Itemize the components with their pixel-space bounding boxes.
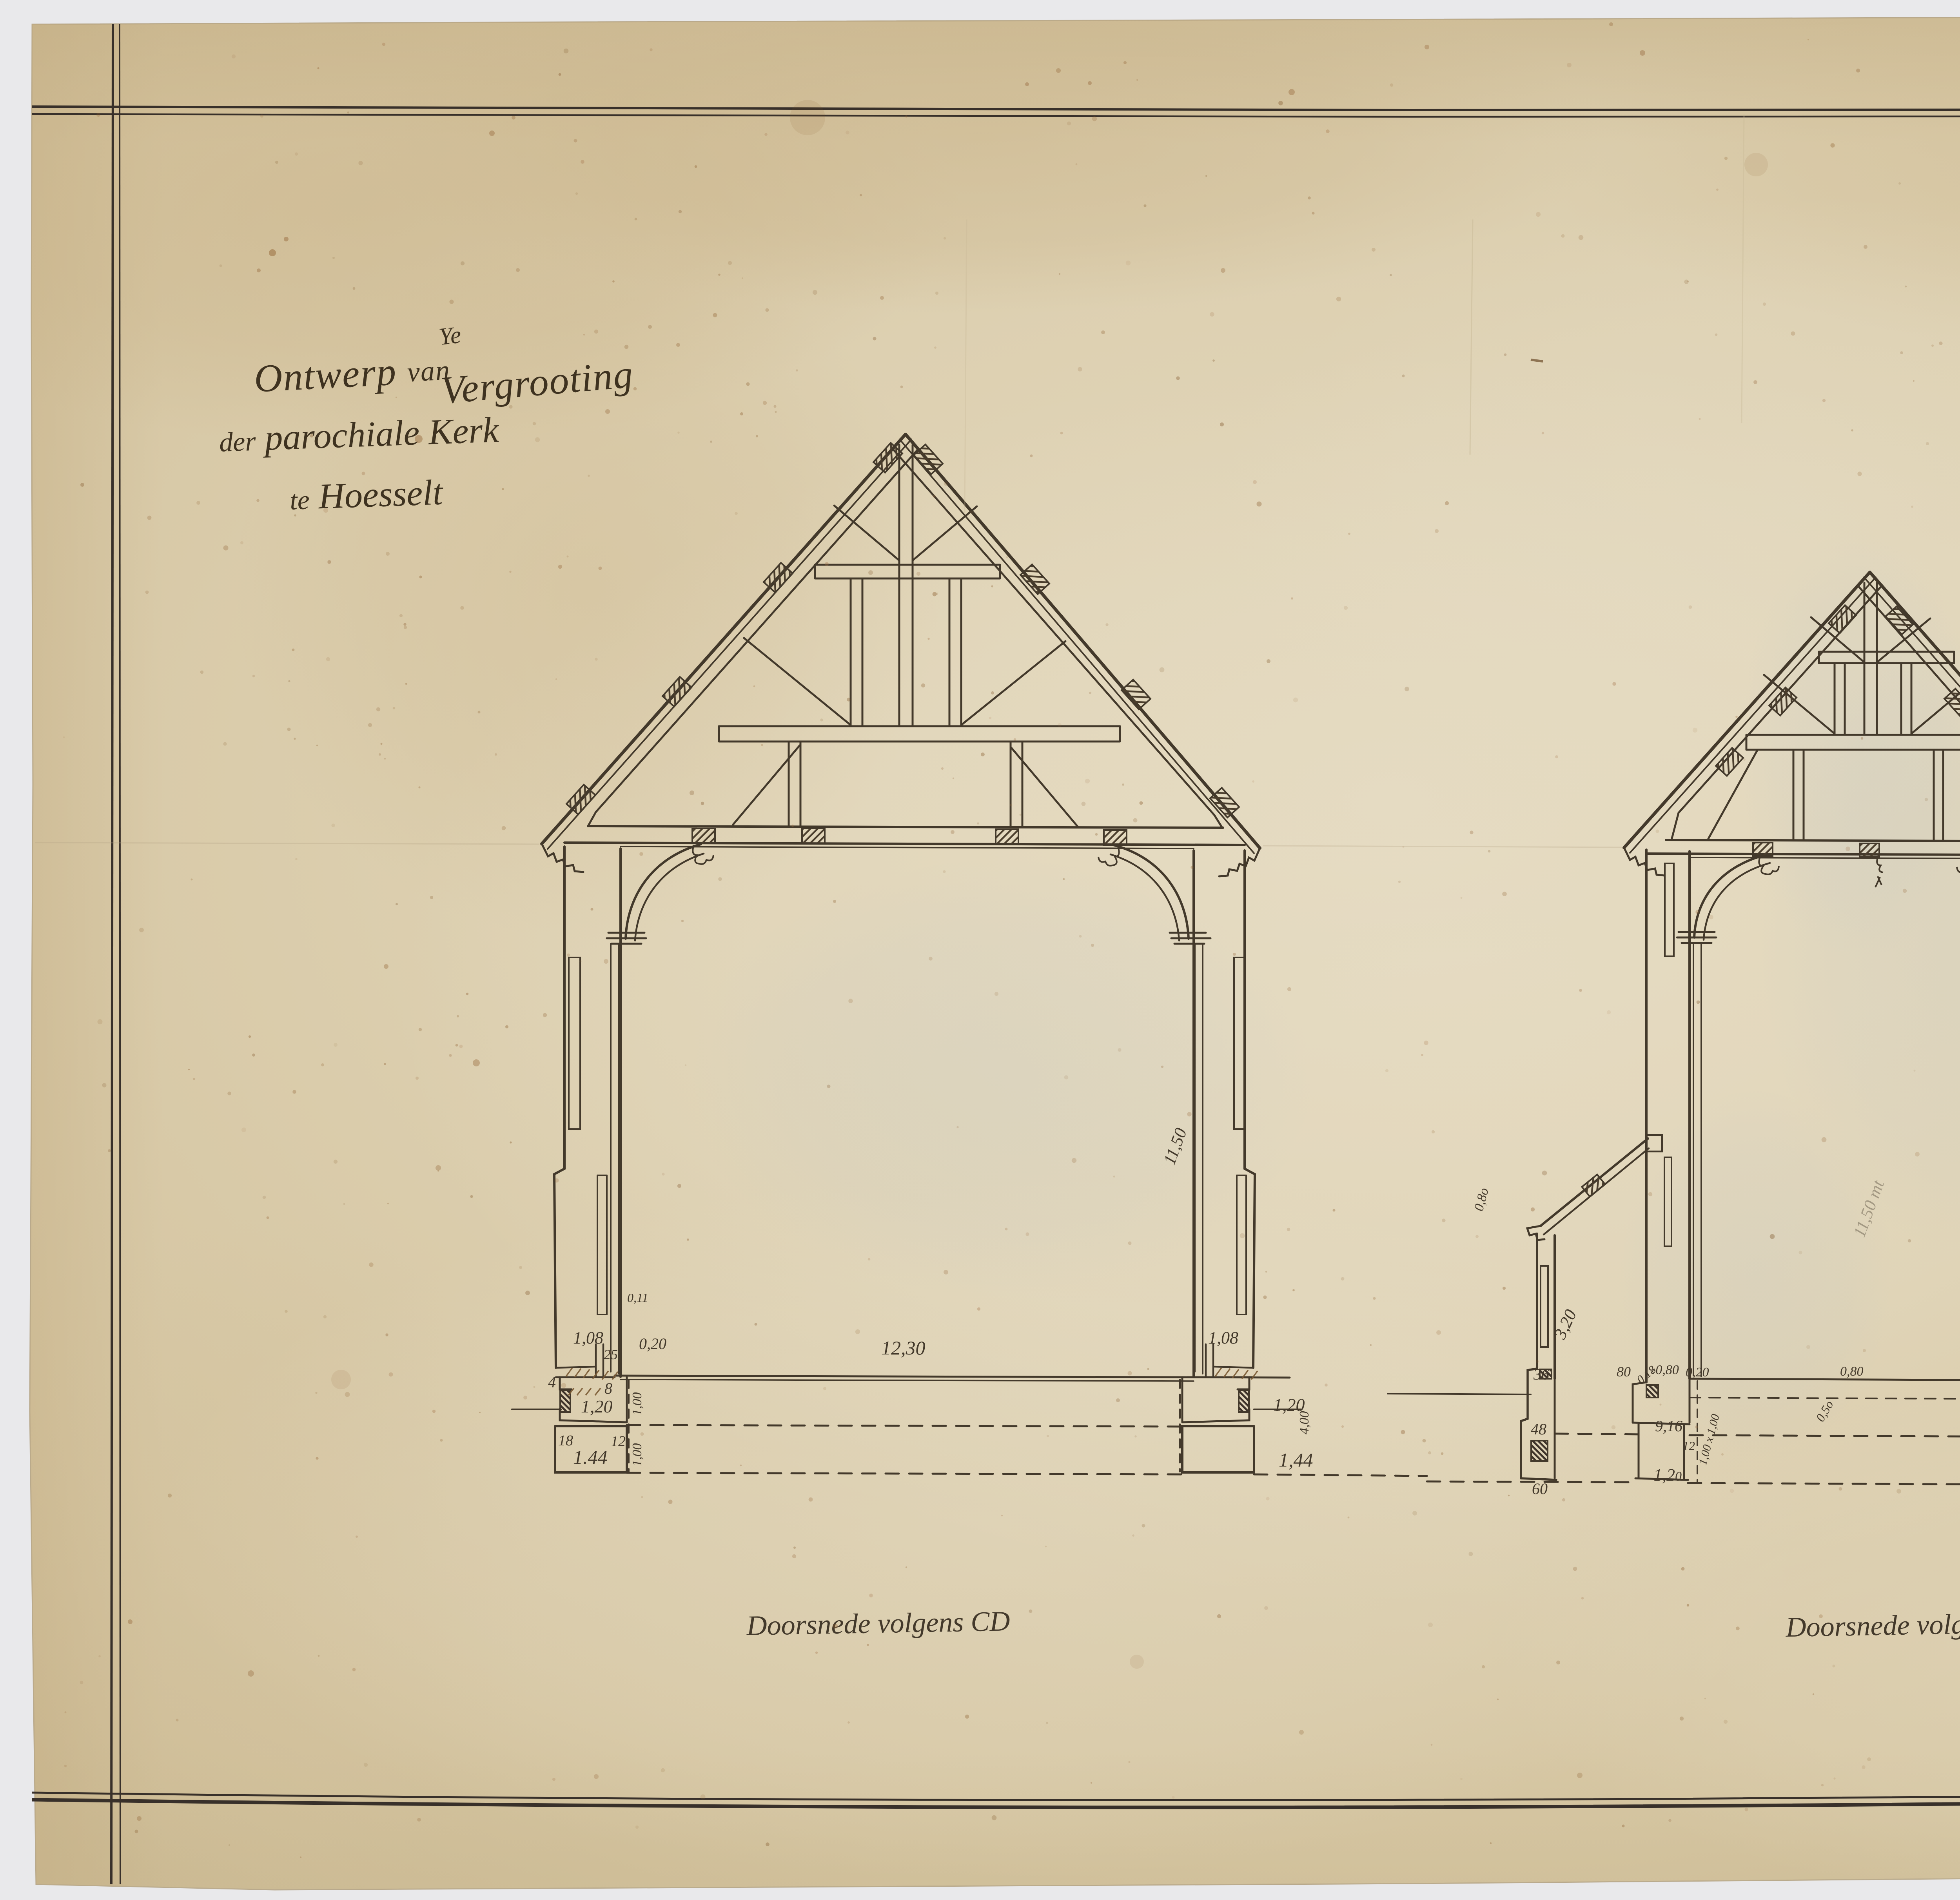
svg-text:Doorsnede volgens CD: Doorsnede volgens CD <box>746 1605 1010 1641</box>
svg-text:0,20: 0,20 <box>639 1335 666 1352</box>
svg-text:8: 8 <box>604 1380 612 1397</box>
svg-text:25: 25 <box>604 1347 618 1362</box>
svg-text:1,44: 1,44 <box>1279 1449 1313 1471</box>
svg-text:1,20: 1,20 <box>581 1396 613 1416</box>
svg-text:1,08: 1,08 <box>573 1328 603 1347</box>
svg-text:1.44: 1.44 <box>573 1446 608 1468</box>
svg-text:Doorsnede volgens EF.: Doorsnede volgens EF. <box>1785 1607 1960 1643</box>
svg-text:18: 18 <box>558 1432 573 1449</box>
svg-text:12: 12 <box>1682 1439 1695 1453</box>
svg-text:12,30: 12,30 <box>881 1337 926 1359</box>
svg-text:9,16: 9,16 <box>1655 1417 1682 1435</box>
svg-text:80: 80 <box>1617 1364 1631 1380</box>
svg-text:0,11: 0,11 <box>627 1291 648 1305</box>
svg-text:12: 12 <box>611 1433 626 1450</box>
svg-text:48: 48 <box>1531 1420 1546 1438</box>
svg-text:60: 60 <box>1532 1480 1548 1498</box>
svg-text:4: 4 <box>548 1373 556 1391</box>
svg-text:1,00: 1,00 <box>630 1392 644 1416</box>
svg-text:1,00: 1,00 <box>630 1443 644 1467</box>
svg-text:4,00: 4,00 <box>1297 1411 1312 1435</box>
svg-text:0,20: 0,20 <box>1686 1365 1709 1380</box>
svg-text:1,08: 1,08 <box>1208 1328 1238 1347</box>
svg-text:0,80: 0,80 <box>1840 1364 1864 1379</box>
svg-text:te Hoesselt: te Hoesselt <box>289 472 444 517</box>
svg-text:36: 36 <box>1533 1365 1549 1383</box>
svg-text:Ye: Ye <box>437 321 462 350</box>
